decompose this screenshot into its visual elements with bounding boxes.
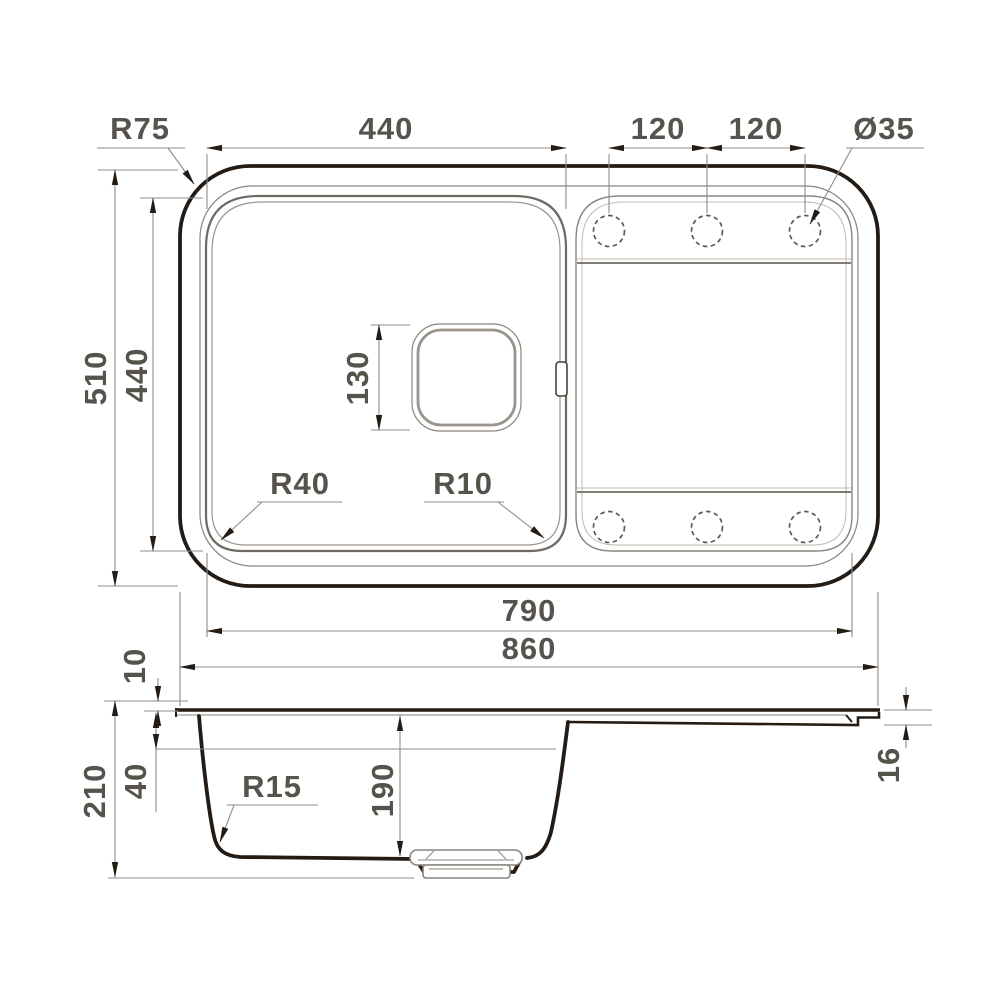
dim-label-510: 510 (78, 351, 113, 406)
sink-technical-drawing: R75 440 120 120 Ø35 510 440 130 (0, 0, 1000, 1000)
dim-label-860: 860 (502, 631, 557, 666)
dim-label-r40: R40 (270, 466, 330, 501)
top-view (180, 166, 878, 586)
bowl-right-wall (527, 722, 568, 858)
dim-label-210: 210 (77, 764, 112, 819)
sink-outer-outline (180, 166, 878, 586)
drainboard-step (846, 715, 852, 722)
faucet-hole-top-3 (790, 216, 821, 247)
faucet-hole-bottom-1 (594, 512, 625, 543)
bowl-outline-inner (212, 202, 560, 545)
drainboard-outline-outer (576, 196, 852, 551)
dim-label-440-top: 440 (359, 111, 414, 146)
dim-label-790: 790 (502, 593, 557, 628)
dim-label-440-left: 440 (119, 348, 154, 403)
dim-label-10: 10 (117, 648, 152, 684)
dim-label-130: 130 (340, 351, 375, 406)
r10-leader (498, 502, 544, 538)
faucet-hole-bottom-2 (692, 512, 723, 543)
dim-label-120-right: 120 (729, 111, 784, 146)
dim-label-16: 16 (871, 747, 906, 783)
drainboard-outline-inner (582, 202, 846, 545)
dim-label-r75: R75 (110, 111, 170, 146)
dim-label-r10: R10 (433, 466, 493, 501)
drain-square-inner (418, 330, 515, 425)
section-right-edge-profile (568, 712, 879, 725)
sink-rim-inner-line (200, 186, 858, 566)
r15-leader (220, 805, 234, 842)
dim-label-190: 190 (365, 763, 400, 818)
faucet-hole-bottom-3 (790, 512, 821, 543)
drain-square-outer (412, 324, 521, 431)
dim-label-120-left: 120 (631, 111, 686, 146)
overflow-notch (556, 362, 567, 396)
dim-label-40: 40 (118, 763, 153, 799)
r75-leader (168, 148, 194, 184)
r40-leader (221, 502, 262, 540)
dim-label-r15: R15 (242, 769, 302, 804)
faucet-hole-top-2 (692, 216, 723, 247)
dim-label-dia35: Ø35 (853, 111, 915, 146)
bowl-outline-outer (206, 196, 566, 551)
drain-fitting-lower (423, 865, 510, 878)
faucet-hole-top-1 (594, 216, 625, 247)
sink-technical-drawing-page: R75 440 120 120 Ø35 510 440 130 (0, 0, 1000, 1000)
